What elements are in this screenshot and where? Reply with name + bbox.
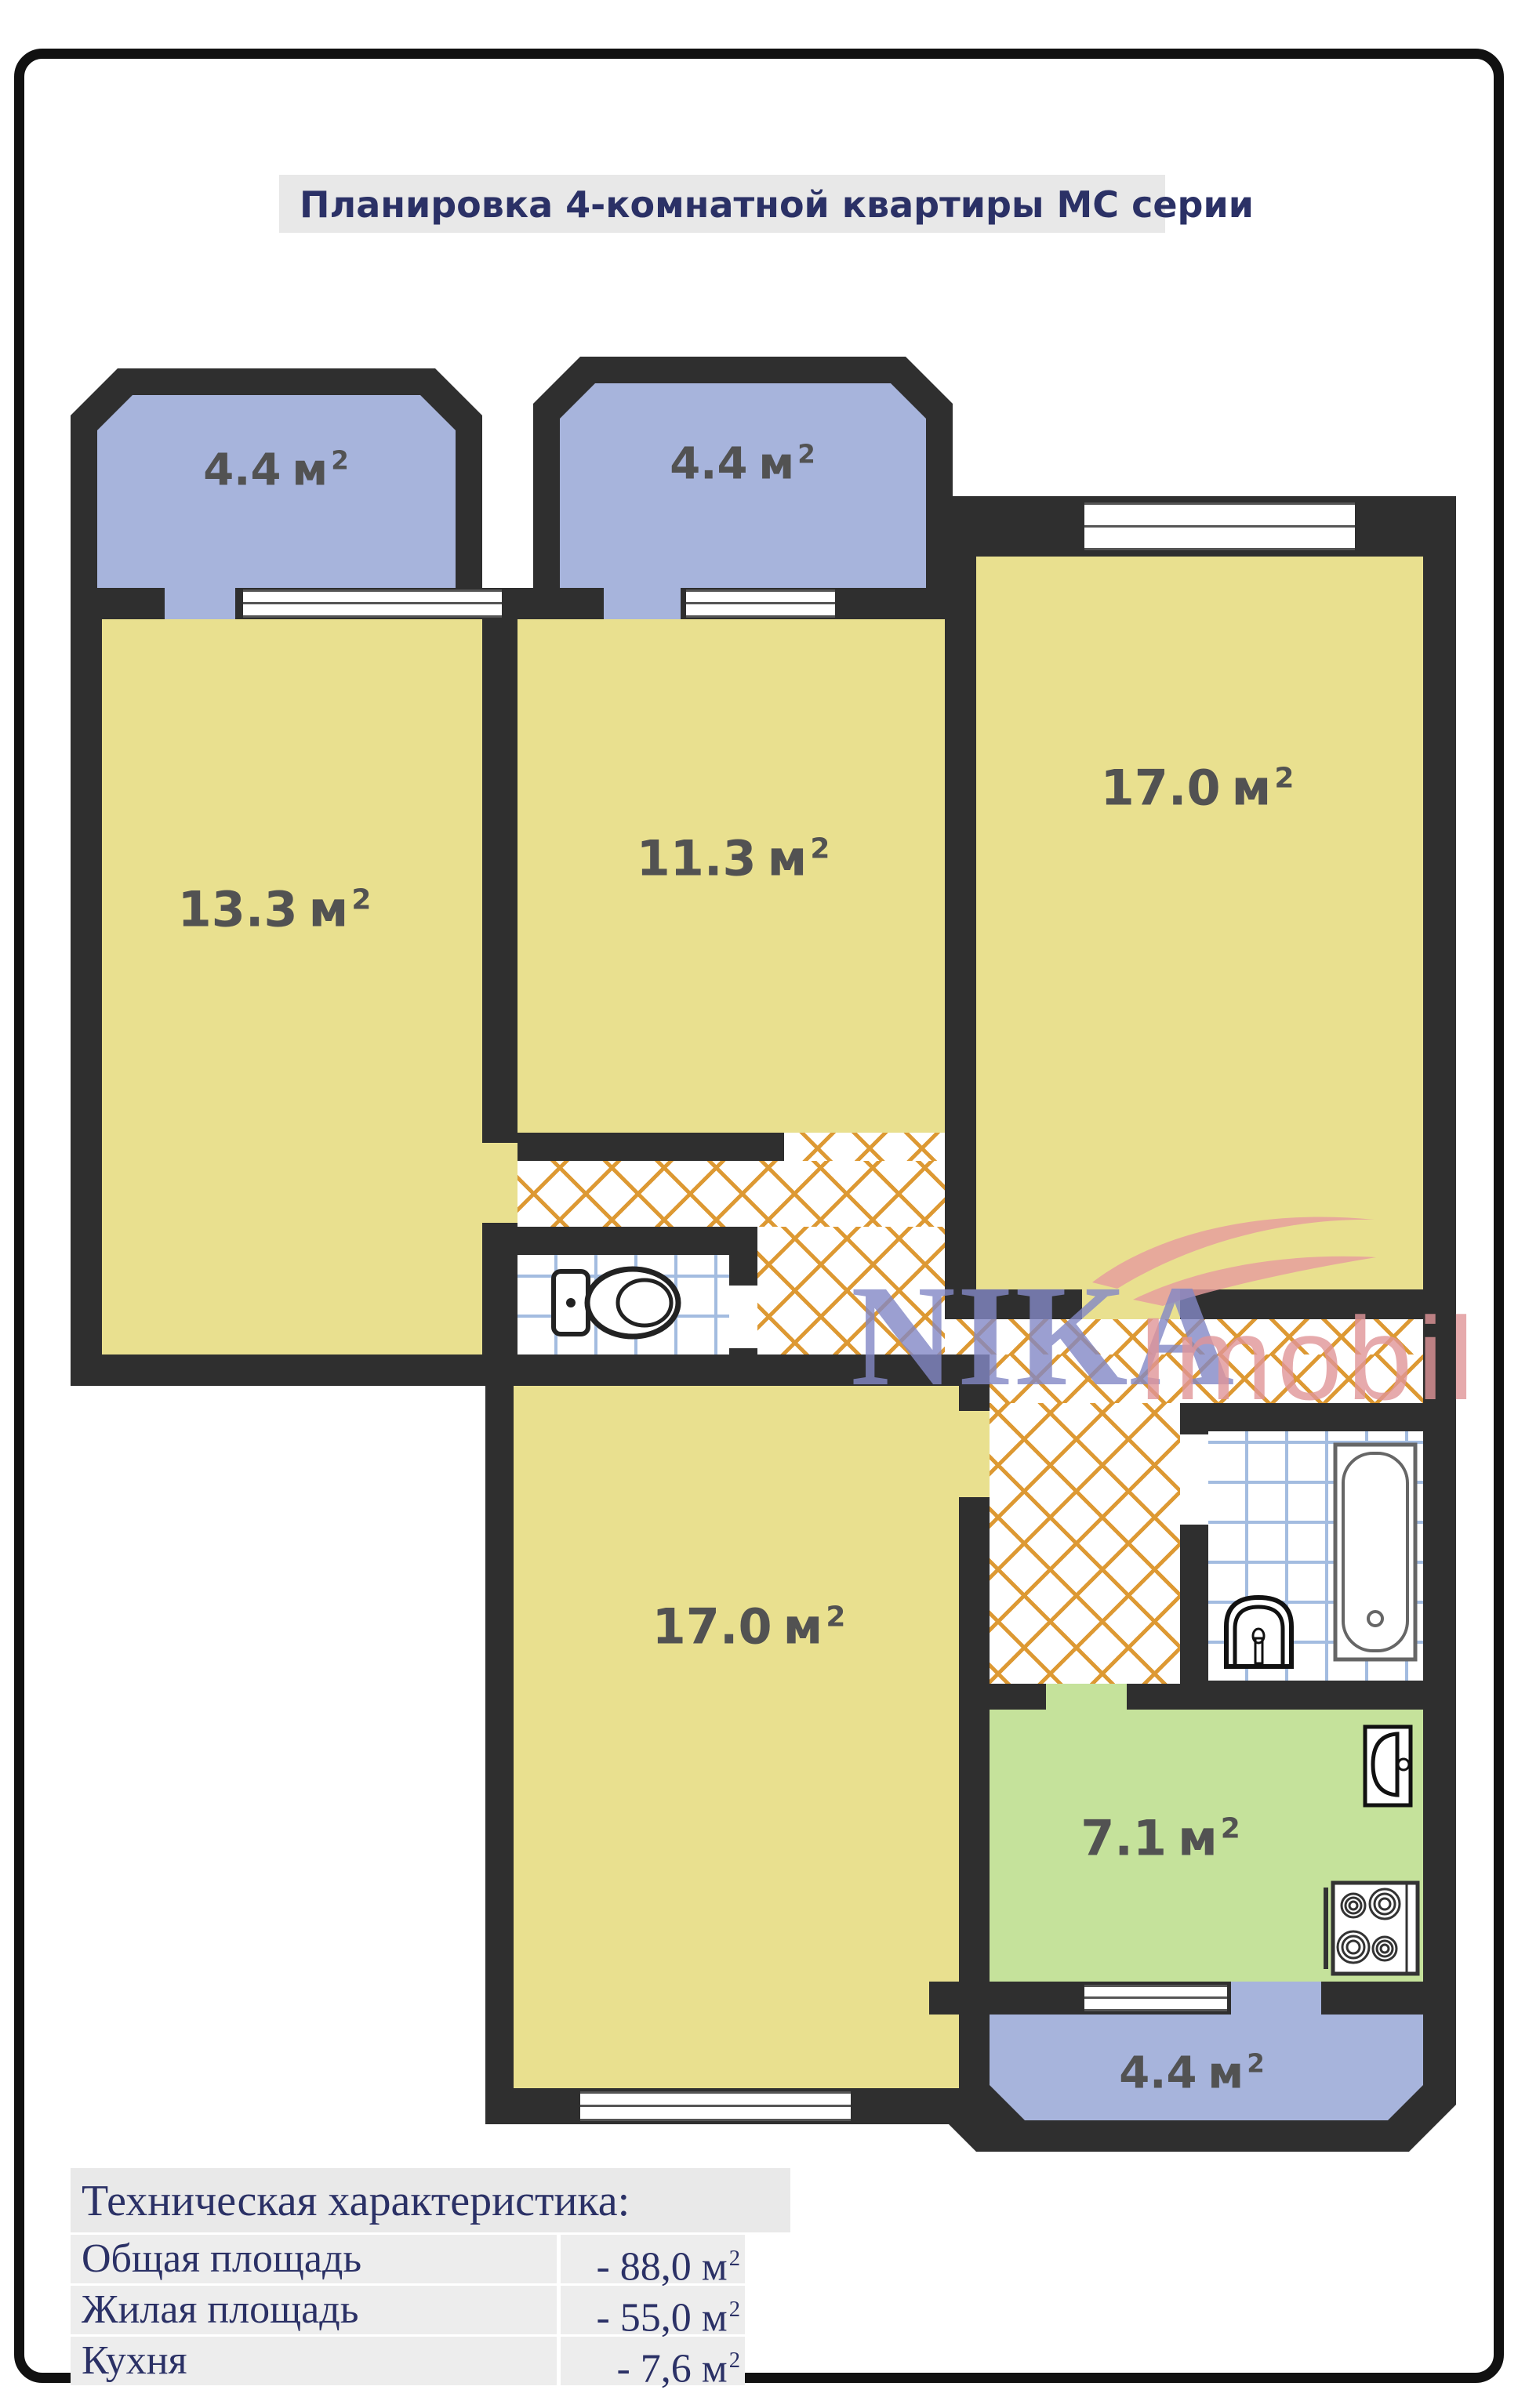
window-room-middle: [686, 589, 835, 618]
room-label-left: 13.3м2: [178, 881, 372, 938]
table-row: Общая площадь - 88,0 м2: [71, 2235, 745, 2283]
door-balcony-left: [165, 588, 235, 619]
door-wc: [729, 1286, 757, 1348]
door-kitchen: [1046, 1684, 1127, 1710]
wall: [1423, 496, 1456, 2015]
door-room-left: [482, 1143, 517, 1223]
floor-plan-page: Планировка 4-комнатной квартиры МС серии: [0, 0, 1518, 2408]
window-room-left: [243, 589, 502, 618]
wall: [486, 1227, 757, 1255]
spec-row-value: - 88,0 м2: [563, 2235, 740, 2291]
spec-row-label: Общая площадь: [82, 2235, 361, 2283]
room-left-floor: [102, 619, 482, 1354]
room-right-floor: [976, 557, 1423, 1289]
column-divider: [557, 2337, 561, 2385]
wall: [482, 588, 517, 1386]
door-room-bottom: [959, 1411, 990, 1497]
spec-table-header: Техническая характеристика:: [71, 2168, 790, 2232]
hallway-floor: [784, 1133, 945, 1164]
watermark-suffix: Imobil: [1137, 1300, 1479, 1417]
spec-row-label: Кухня: [82, 2337, 187, 2385]
door-balcony-bottom: [1231, 1982, 1321, 2015]
spec-row-value: - 55,0 м2: [563, 2286, 740, 2342]
column-divider: [557, 2235, 561, 2283]
window-room-right: [1084, 502, 1355, 550]
window-room-bottom: [580, 2091, 851, 2121]
bathtub-icon: [1333, 1442, 1418, 1662]
spec-row-label: Жилая площадь: [82, 2286, 358, 2334]
room-label-middle: 11.3м2: [637, 830, 830, 887]
door-balcony-middle: [604, 588, 681, 619]
stove-icon: [1324, 1880, 1421, 1977]
spec-table: Техническая характеристика: Общая площад…: [71, 2168, 790, 2388]
wall: [485, 1354, 514, 2124]
wall: [71, 588, 102, 1386]
spec-row-value: - 7,6 м2: [563, 2337, 740, 2393]
room-label-balcony-bottom: 4.4м2: [1119, 2048, 1265, 2099]
room-label-balcony-top-middle: 4.4м2: [670, 439, 815, 490]
room-label-right: 17.0м2: [1101, 760, 1295, 817]
wall: [959, 1684, 1456, 1710]
kitchen-sink-icon: [1363, 1724, 1413, 1808]
column-divider: [557, 2286, 561, 2334]
toilet-icon: [549, 1264, 686, 1342]
room-label-bottom: 17.0м2: [652, 1598, 846, 1655]
room-label-kitchen: 7.1м2: [1080, 1810, 1240, 1867]
room-bottom-floor: [514, 1386, 959, 2088]
door-bathroom: [1180, 1434, 1208, 1525]
hallway-floor: [959, 1403, 1180, 1684]
room-label-balcony-top-left: 4.4м2: [203, 445, 349, 496]
table-row: Жилая площадь - 55,0 м2: [71, 2286, 745, 2334]
hallway-floor: [517, 1161, 945, 1227]
bathroom-sink-icon: [1222, 1591, 1296, 1670]
wall: [945, 496, 976, 1319]
table-row: Кухня - 7,6 м2: [71, 2337, 745, 2385]
wall: [482, 1133, 784, 1161]
page-title: Планировка 4-комнатной квартиры МС серии: [279, 175, 1165, 233]
window-kitchen: [1084, 1985, 1227, 2011]
